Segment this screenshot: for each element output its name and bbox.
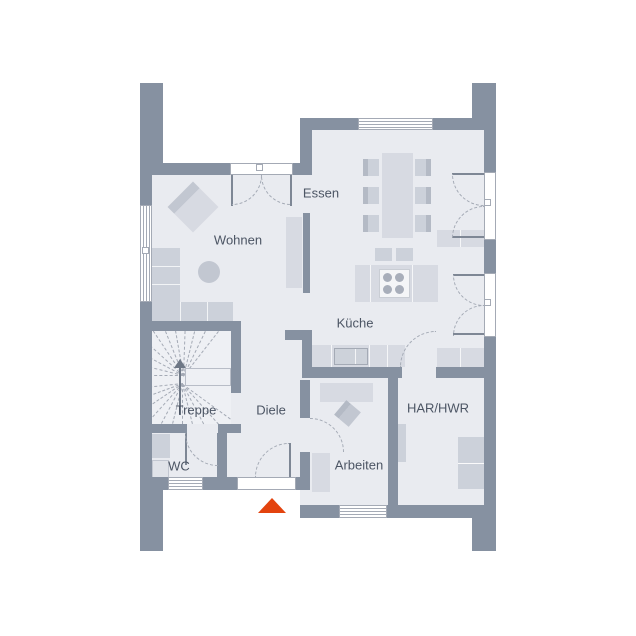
- wall-kueche-south: [308, 367, 402, 378]
- wall-wc-top-right: [218, 424, 241, 433]
- cooktop-burner: [395, 285, 404, 294]
- dining-table: [382, 153, 413, 238]
- sofa-cushion-line: [180, 302, 181, 323]
- dining-chair: [363, 215, 379, 232]
- washbasin: [152, 434, 170, 458]
- room-label-wohnen: Wohnen: [214, 233, 262, 248]
- counter-divider: [369, 345, 370, 367]
- room-label-treppe: Treppe: [176, 403, 217, 418]
- french-door-handle-1: [484, 199, 491, 206]
- sofa-cushion-line: [152, 266, 180, 267]
- bar-stool: [396, 248, 413, 261]
- stair-landing: [185, 368, 231, 386]
- cooktop-burner: [383, 285, 392, 294]
- sofa-cushion-line: [152, 284, 180, 285]
- dining-chair: [363, 159, 379, 176]
- wall-right-1: [484, 118, 496, 172]
- appliance-gap: [458, 463, 484, 464]
- cabinet-arbeiten: [312, 453, 330, 492]
- wall-tv-partition: [303, 213, 310, 293]
- wall-har-north: [436, 367, 484, 378]
- desk: [320, 383, 373, 402]
- window-wc: [168, 477, 203, 490]
- sofa-cushion-line: [207, 302, 208, 323]
- french-door-handle-2: [484, 299, 491, 306]
- terrace-door-handle: [256, 164, 263, 171]
- room-label-kueche: Küche: [337, 316, 374, 331]
- kitchen-sink: [334, 348, 368, 365]
- wall-essen-top-left: [300, 118, 358, 130]
- appliance-washer: [458, 437, 484, 463]
- wall-stub-top-left: [140, 83, 163, 175]
- wall-right-2: [484, 240, 496, 273]
- wall-arbeiten-west-1: [300, 380, 310, 418]
- wall-wc-right: [217, 433, 227, 477]
- wall-arbeiten-west-2: [300, 452, 310, 477]
- dining-chair: [363, 187, 379, 204]
- bar-stool: [375, 248, 392, 261]
- wall-right-3: [484, 337, 496, 520]
- window-essen-top: [358, 118, 433, 130]
- room-label-diele: Diele: [256, 403, 286, 418]
- wall-south-right: [387, 505, 484, 518]
- wall-left-1: [140, 175, 152, 205]
- coffee-table: [198, 261, 220, 283]
- stair-tread: [149, 375, 183, 376]
- island-divider: [370, 265, 371, 302]
- cooktop-burner: [395, 273, 404, 282]
- wall-bottom-wc-3: [296, 477, 310, 490]
- island-divider: [412, 265, 413, 302]
- front-door-leaf: [289, 443, 291, 477]
- counter-divider: [460, 348, 461, 367]
- wall-har-west: [388, 378, 398, 518]
- sofa-section-horizontal: [152, 302, 233, 323]
- stair-direction-arrow-head: [174, 359, 186, 368]
- entrance-arrow-icon: [258, 498, 286, 513]
- counter-divider: [331, 345, 332, 367]
- french-door-frame-1: [484, 172, 496, 240]
- counter-divider: [387, 345, 388, 367]
- front-door-frame: [237, 477, 296, 490]
- window-arbeiten: [339, 505, 387, 518]
- wall-diele-l-horizontal: [285, 330, 302, 340]
- cabinet-har: [398, 424, 406, 462]
- dining-chair: [415, 159, 431, 176]
- wall-arbeiten-south-left: [300, 505, 339, 518]
- sofa-section-vertical: [152, 248, 180, 302]
- room-label-har-hwr: HAR/HWR: [407, 401, 469, 416]
- wall-bottom-wc-1: [140, 477, 168, 490]
- dining-chair: [415, 215, 431, 232]
- wall-treppe-right: [231, 331, 241, 393]
- wall-bottom-wc-2: [203, 477, 237, 490]
- sideboard-wohnen: [286, 217, 302, 288]
- toilet: [152, 460, 169, 478]
- wall-stub-bottom-left: [140, 490, 163, 551]
- appliance-dryer: [458, 464, 484, 489]
- wall-wohnen-top-left: [163, 163, 230, 175]
- room-label-arbeiten: Arbeiten: [335, 458, 383, 473]
- wall-treppe-top: [149, 321, 241, 331]
- room-label-wc: WC: [168, 459, 190, 474]
- cooktop-burner: [383, 273, 392, 282]
- window-handle-left: [142, 247, 149, 254]
- dining-chair: [415, 187, 431, 204]
- room-label-essen: Essen: [303, 186, 339, 201]
- sink-divider: [355, 349, 356, 364]
- wall-stub-bottom-right: [472, 518, 496, 551]
- wall-wc-top-left: [149, 424, 187, 433]
- floor-plan: Wohnen Essen Küche Treppe Diele WC Arbei…: [0, 0, 636, 636]
